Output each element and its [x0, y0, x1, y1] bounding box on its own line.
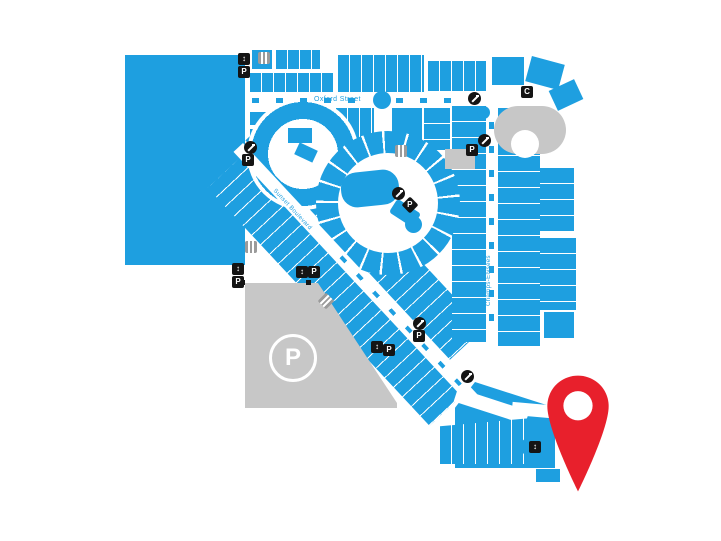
toilets-icon — [245, 241, 257, 253]
toilets-icon — [258, 52, 270, 64]
toilets-icon — [395, 145, 407, 157]
street-crossing-marks — [396, 98, 458, 103]
map-canvas: Oxford Street Sunset Boulevard Champs-Él… — [0, 0, 721, 541]
roundabout-small — [477, 106, 490, 119]
roundabout — [373, 91, 391, 109]
street-label-champs: Champs-Élysées — [486, 228, 492, 306]
building-block — [288, 128, 312, 143]
escalator-icon — [413, 317, 426, 330]
parking-icon: P — [308, 266, 320, 278]
building-row-south — [440, 418, 532, 464]
escalator-icon — [392, 187, 405, 200]
parking-icon: P — [238, 66, 250, 78]
parking-icon-glyph: P — [407, 201, 412, 209]
street-label-oxford: Oxford Street — [314, 96, 361, 103]
building-block — [250, 73, 334, 92]
lift-icon: ↕ — [371, 341, 383, 353]
building-block — [544, 312, 574, 338]
escalator-icon — [478, 134, 491, 147]
cafe-icon: C — [521, 86, 533, 98]
building-block — [492, 57, 524, 85]
escalator-icon — [244, 141, 257, 154]
parking-icon: P — [232, 276, 244, 288]
lift-icon: ↕ — [296, 266, 308, 278]
building-block — [540, 168, 574, 232]
parking-icon: P — [466, 144, 478, 156]
map-dot — [306, 280, 311, 285]
building-block — [540, 238, 576, 310]
lift-icon: ↕ — [529, 441, 541, 453]
lift-icon: ↕ — [238, 53, 250, 65]
building-block-round — [405, 216, 422, 233]
building-block-west — [125, 55, 245, 265]
escalator-icon — [461, 370, 474, 383]
lift-icon: ↕ — [232, 263, 244, 275]
parking-icon: P — [413, 330, 425, 342]
location-pin-hole — [563, 391, 592, 420]
building-block — [276, 50, 320, 69]
building-block — [428, 61, 486, 91]
location-pin[interactable] — [541, 371, 615, 497]
parking-icon: P — [242, 154, 254, 166]
parking-area-badge: P — [269, 334, 317, 382]
building-block — [338, 55, 424, 92]
escalator-icon — [468, 92, 481, 105]
parking-icon: P — [383, 344, 395, 356]
pond-notch — [511, 130, 539, 158]
